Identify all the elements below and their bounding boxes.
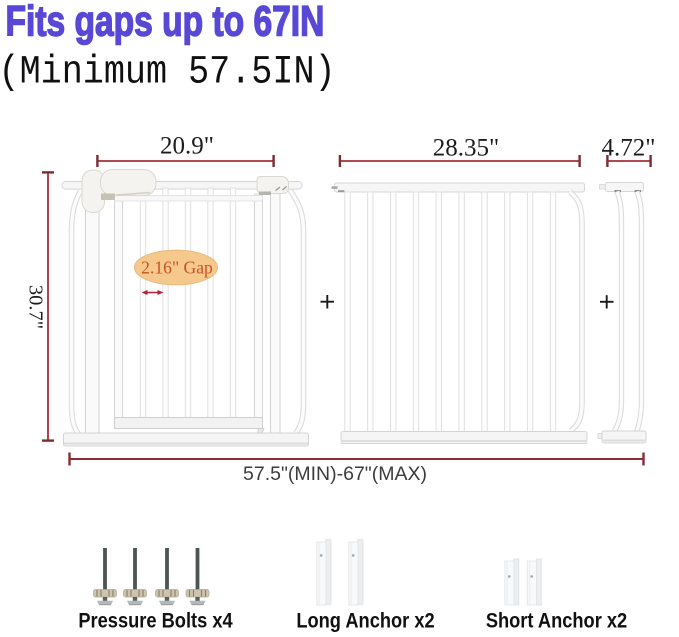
svg-text:20.9": 20.9" — [160, 133, 214, 160]
svg-text:28.35": 28.35" — [433, 135, 499, 162]
svg-text:Short Anchor x2: Short Anchor x2 — [486, 609, 627, 633]
svg-text:Long Anchor x2: Long Anchor x2 — [296, 609, 434, 633]
svg-text:4.72": 4.72" — [602, 135, 656, 162]
svg-text:Fits gaps up to 67IN: Fits gaps up to 67IN — [6, 0, 325, 45]
svg-text:2.16" Gap: 2.16" Gap — [141, 258, 213, 278]
svg-text:Pressure Bolts x4: Pressure Bolts x4 — [78, 609, 232, 633]
svg-text:30.7": 30.7" — [25, 285, 47, 329]
svg-text:57.5"(MIN)-67"(MAX): 57.5"(MIN)-67"(MAX) — [243, 463, 427, 485]
svg-text:(Minimum 57.5IN): (Minimum 57.5IN) — [0, 51, 336, 96]
